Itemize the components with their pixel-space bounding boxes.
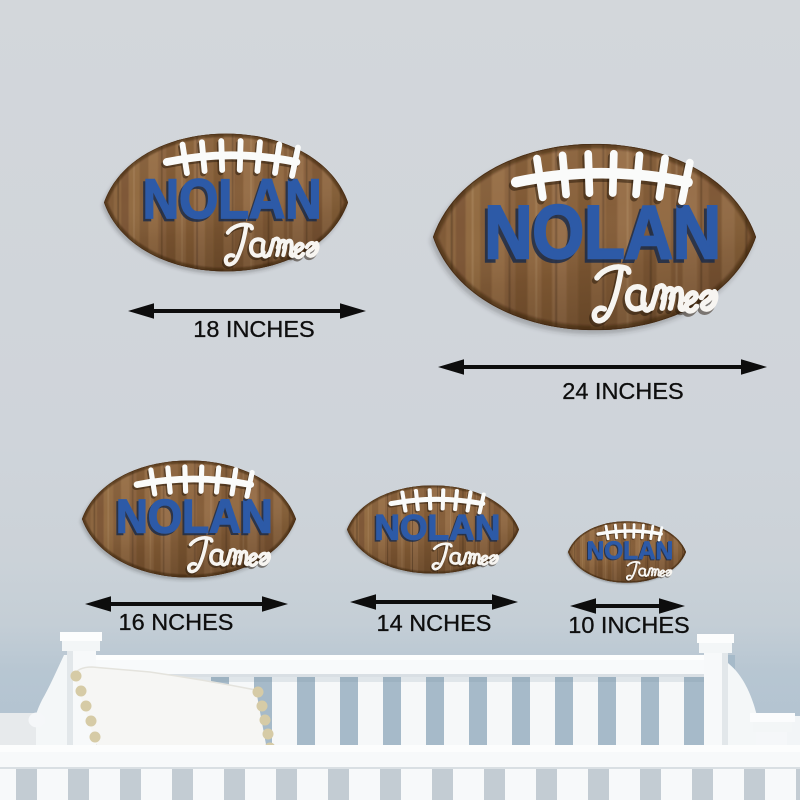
svg-text:24 INCHES: 24 INCHES [562,378,683,404]
svg-text:10 INCHES: 10 INCHES [568,612,689,638]
svg-text:14 NCHES: 14 NCHES [377,610,492,636]
svg-text:18 INCHES: 18 INCHES [193,316,314,342]
svg-text:16 NCHES: 16 NCHES [119,609,234,635]
